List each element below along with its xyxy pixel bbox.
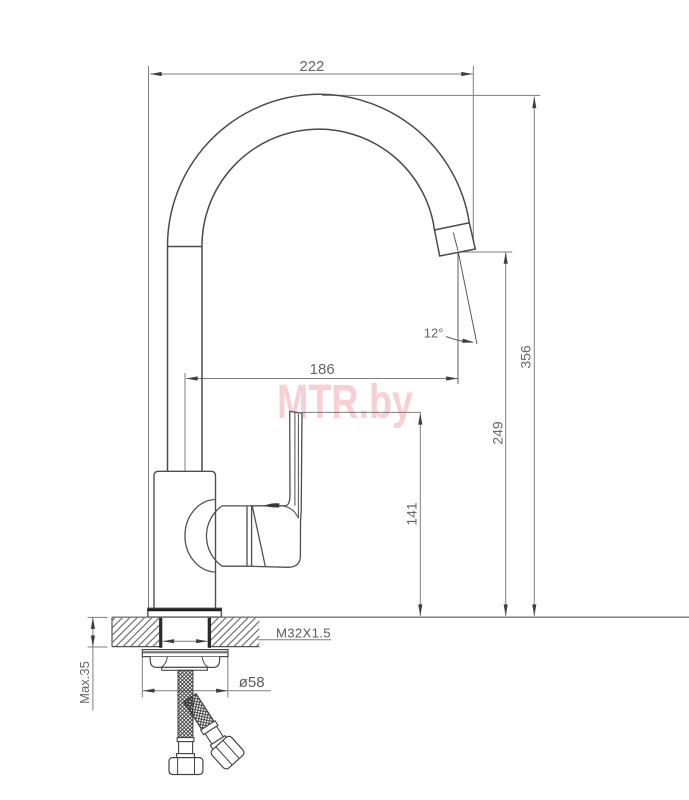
- svg-text:356: 356: [518, 345, 534, 369]
- svg-text:186: 186: [310, 361, 335, 378]
- svg-text:12°: 12°: [424, 325, 444, 340]
- svg-text:M32X1.5: M32X1.5: [276, 625, 331, 640]
- svg-text:Max.35: Max.35: [77, 661, 92, 704]
- svg-text:222: 222: [299, 58, 324, 75]
- svg-text:141: 141: [404, 502, 420, 526]
- svg-text:ø58: ø58: [239, 674, 265, 691]
- svg-text:249: 249: [490, 421, 506, 445]
